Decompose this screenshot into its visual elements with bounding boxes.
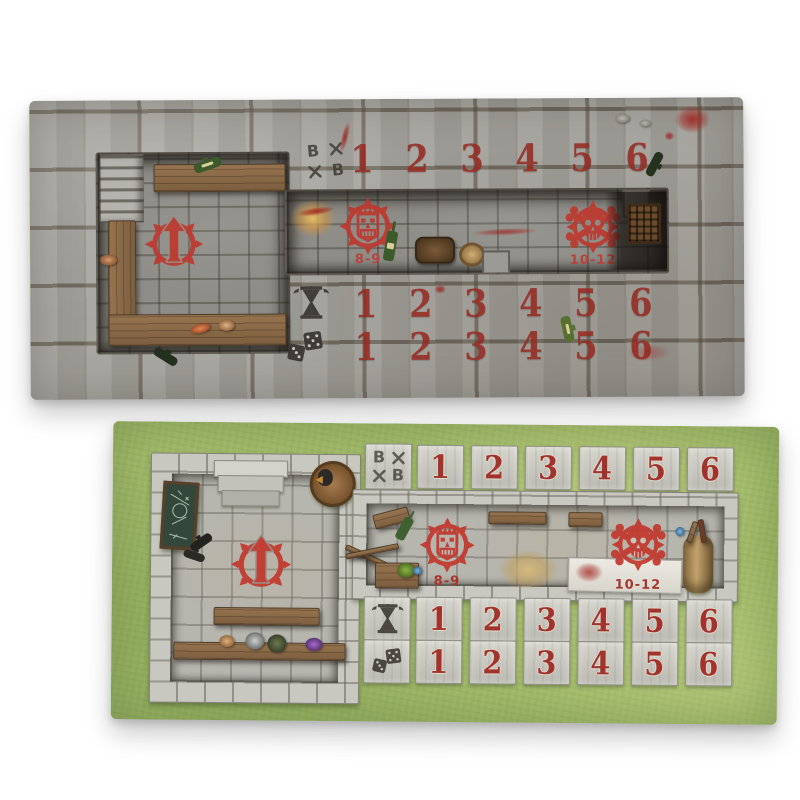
score-track-cell: 2	[393, 137, 442, 181]
bb-letter: B	[373, 449, 385, 465]
bb-letter: B	[392, 468, 404, 484]
food-scrap-icon	[218, 320, 234, 331]
bench	[154, 164, 286, 193]
pebble	[639, 120, 650, 127]
hourglass-tile	[363, 596, 410, 640]
hourglass-icon	[370, 601, 404, 635]
blood-streak	[472, 227, 538, 237]
reroll-track-tile: 4	[577, 641, 624, 685]
score-track-cell: 3	[448, 136, 497, 180]
blood-splat	[674, 105, 710, 133]
score-track-tile: 2	[471, 445, 518, 489]
ball-icon	[305, 638, 322, 651]
score-track-cell: 5	[558, 136, 607, 180]
grass-dugout-board: B B 1 2 3 4 5 6 8-9 10-12	[111, 421, 780, 725]
reserves-arrow-icon	[229, 532, 294, 597]
reroll-track-cell: 1	[342, 325, 391, 369]
dice-icon	[283, 325, 327, 369]
reroll-track: 1 2 3 4 5 6	[338, 324, 668, 370]
turn-track: 1 2 3 4 5 6	[338, 281, 668, 327]
crossed-axes-icon	[307, 164, 323, 180]
turn-track-tile: 6	[685, 599, 732, 643]
stone-pillar	[482, 250, 510, 275]
crate	[568, 512, 602, 527]
ko-casualty-trench: 8-9 10-12	[285, 188, 669, 276]
food-scrap-icon	[219, 635, 234, 647]
score-track: 1 2 3 4 5 6	[334, 136, 664, 182]
turn-track-cell: 4	[506, 281, 555, 325]
reserves-arrow-icon	[143, 213, 205, 275]
bird-icon	[318, 469, 333, 486]
casualty-box-label: 10-12	[608, 578, 668, 592]
reroll-track-cell: 2	[397, 325, 446, 369]
score-track-cell: 4	[503, 136, 552, 180]
hay-pile	[498, 549, 558, 590]
dungeon-dugout-board: B B 1 2 3 4 5 6 8-9 10-12 1 2 3 4 5 6	[29, 97, 745, 400]
stairs	[222, 490, 280, 507]
score-track-tile: 1	[417, 445, 464, 489]
bench	[488, 511, 546, 525]
pebble	[615, 114, 629, 123]
blood-bowl-logo-icon: B B	[369, 448, 407, 484]
helmet-icon	[245, 632, 264, 649]
crossed-axes-icon	[390, 450, 405, 465]
reroll-track-cell: 3	[452, 324, 501, 368]
hourglass-icon	[292, 283, 330, 321]
turn-track-cell: 1	[341, 282, 390, 326]
dice-tile	[363, 639, 410, 683]
casualty-skull-icon	[608, 514, 669, 575]
shield-icon	[267, 634, 286, 652]
turn-track-tile: 1	[415, 597, 462, 641]
turn-track-tile: 5	[631, 599, 678, 643]
reserves-box	[95, 152, 290, 355]
reroll-track-cell: 4	[507, 324, 556, 368]
kit-bag	[683, 535, 714, 593]
blood-splat	[434, 285, 446, 294]
score-track-tile: 5	[633, 447, 680, 491]
ball-icon	[675, 527, 684, 536]
turn-track-tile: 2	[469, 597, 516, 641]
crossed-axes-icon	[371, 468, 386, 483]
reroll-track-tile: 2	[469, 640, 516, 684]
rat-icon	[100, 254, 117, 265]
turn-track-tile: 4	[577, 598, 624, 642]
stairs	[100, 154, 144, 222]
trapdoor-grate-icon	[627, 204, 661, 244]
ko-casualty-trench: 8-9 10-12	[352, 489, 739, 602]
turn-track-cell: 6	[616, 281, 665, 325]
blood-bowl-logo-tile: B B	[365, 443, 412, 489]
reroll-track-tile: 3	[523, 641, 570, 685]
reroll-track-tile: 1	[415, 640, 462, 684]
blood-splat	[575, 562, 603, 582]
score-track-tile: 3	[525, 446, 572, 490]
barrel-icon	[415, 237, 455, 264]
turn-track-tile: 3	[523, 598, 570, 642]
score-track-tile: 6	[687, 447, 734, 491]
reroll-track-tile: 5	[631, 642, 678, 686]
round-table	[310, 461, 356, 507]
chalk-play-diagram	[163, 484, 197, 548]
blood-splat	[664, 131, 674, 140]
chalkboard-icon	[159, 481, 199, 551]
dice-icon	[369, 643, 405, 679]
ko-box-label: 8-9	[419, 575, 475, 588]
reserves-room	[149, 452, 361, 704]
bench	[214, 607, 320, 626]
ko-face-icon	[419, 517, 475, 573]
reroll-track-tile: 6	[685, 642, 732, 686]
score-track-tile: 4	[579, 446, 626, 490]
bb-letter: B	[306, 142, 320, 159]
turn-track-cell: 3	[451, 281, 500, 325]
